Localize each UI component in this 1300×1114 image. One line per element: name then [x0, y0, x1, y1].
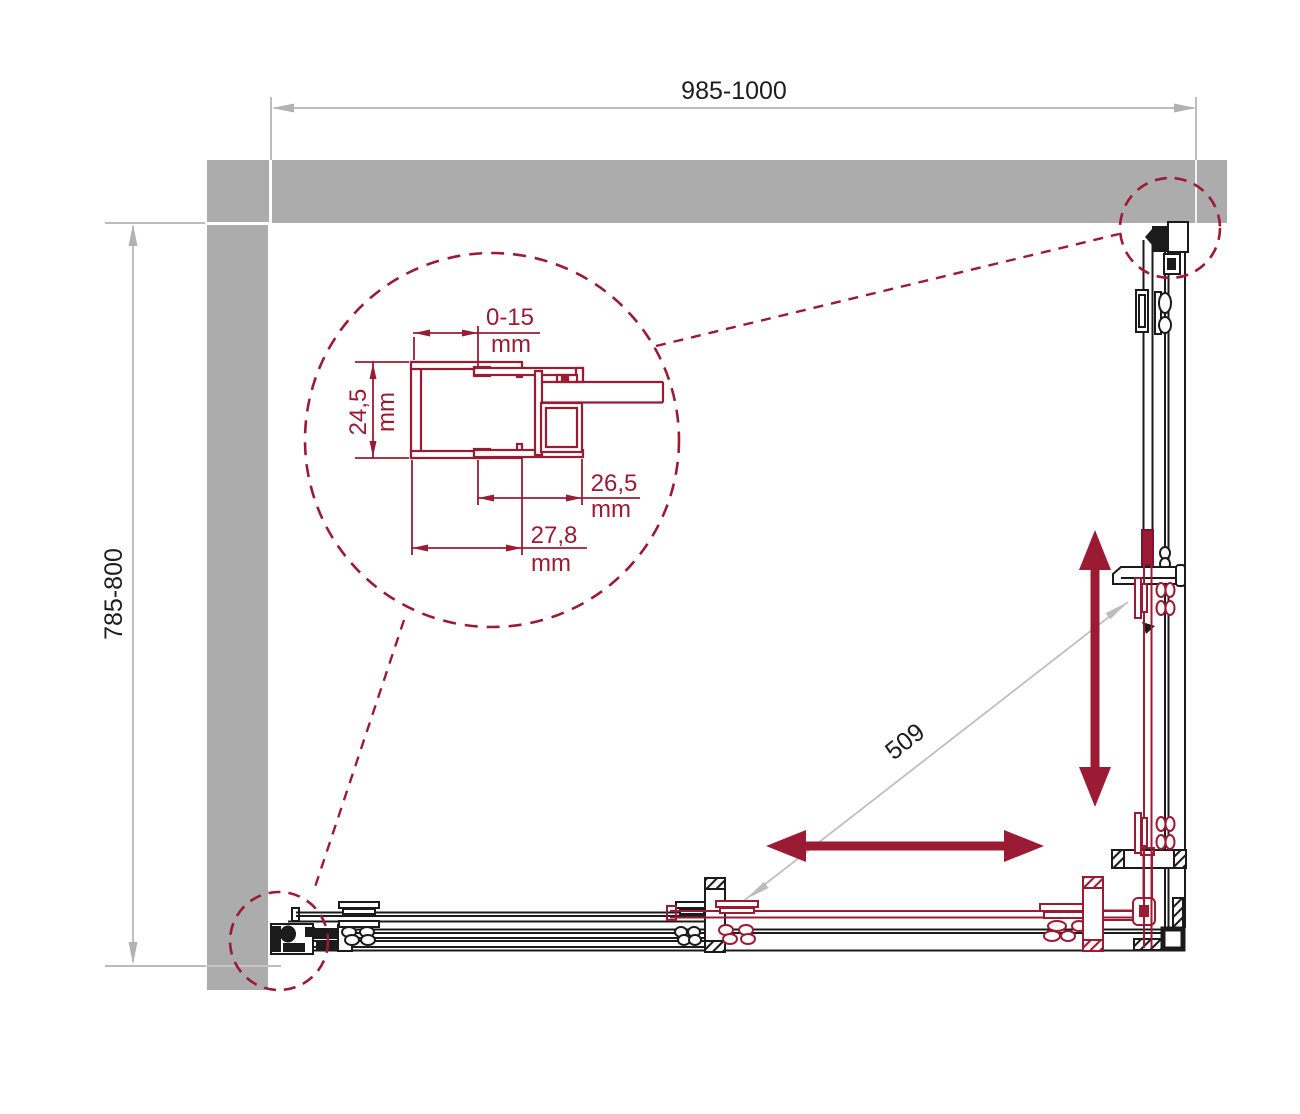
right-wall-bracket: [1145, 222, 1188, 274]
front-centre-post: [705, 878, 725, 952]
diagonal-dimension: [737, 602, 1128, 906]
profile-outer-left: [411, 362, 421, 458]
technical-drawing-page: 985-1000 785-800 509: [0, 0, 1300, 1114]
profile-chamber-inner: [546, 408, 577, 447]
glass-offset-unit-label: mm: [591, 496, 631, 523]
profile-width-unit-label: mm: [531, 550, 571, 577]
leader-to-top-right: [656, 234, 1119, 346]
left-wall: [207, 225, 268, 990]
adjust-range-label: 0-15: [486, 304, 534, 331]
leader-to-bottom-left: [313, 620, 404, 893]
door-slide-arrow-horizontal: [766, 830, 1044, 862]
front-roller-carriage-left: [339, 902, 379, 945]
front-sliding-door: [667, 848, 1155, 951]
profile-width-label: 27,8: [531, 522, 578, 549]
right-fixed-panel-and-track: [1112, 222, 1188, 950]
glass-offset-label: 26,5: [591, 470, 638, 497]
wall-corner-block: [207, 160, 269, 222]
adjust-unit-label: mm: [491, 331, 531, 358]
front-fixed-panel-and-track: [271, 878, 1164, 954]
shower-enclosure-plan-drawing: 985-1000 785-800 509: [0, 0, 1300, 1114]
depth-dimension-label: 785-800: [100, 548, 128, 640]
arrowhead-right: [1174, 104, 1196, 113]
arrowhead-top: [129, 224, 138, 246]
walls: [207, 160, 1227, 990]
front-wall-profile-hardware: [271, 924, 352, 954]
arrowhead-bottom: [129, 942, 138, 964]
diagonal-dimension-label: 509: [880, 718, 930, 766]
profile-depth-unit-label: mm: [373, 392, 400, 432]
detail-callouts: [230, 178, 1220, 990]
glass-panel-section: [542, 382, 663, 403]
wall-profile-cross-section: [411, 362, 663, 458]
right-bottom-bracket: [1112, 850, 1186, 868]
door-slide-arrow-vertical: [1079, 530, 1111, 807]
top-wall: [272, 160, 1227, 223]
arrowhead-diagonal-top: [1106, 602, 1129, 619]
arrowhead-diagonal-bottom: [746, 882, 769, 899]
arrowhead-left: [272, 104, 294, 113]
profile-depth-label: 24,5: [345, 389, 372, 436]
width-dimension-label: 985-1000: [681, 77, 787, 105]
